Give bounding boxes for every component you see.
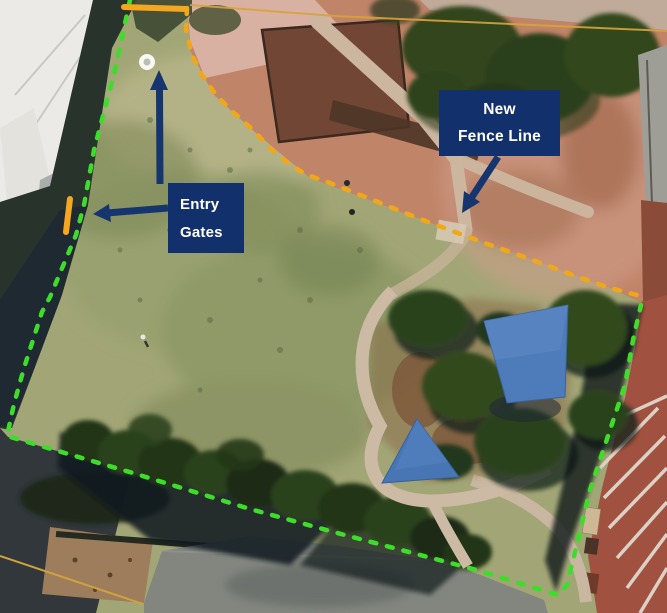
- new-fence-label-line1: New: [483, 102, 515, 118]
- entry-gates-label-line2: Gates: [180, 225, 244, 240]
- entry-gate-left: [66, 199, 70, 232]
- aerial-site-plan: 3: [0, 0, 667, 613]
- entry-gate-top: [124, 7, 186, 9]
- entry-gates-label-line1: Entry: [180, 197, 244, 212]
- gate-marker-circle: [139, 54, 155, 70]
- new-fence-label-line2: Fence Line: [458, 129, 541, 145]
- aerial-basemap: 3: [0, 0, 667, 613]
- entry-gates-label: Entry Gates: [168, 183, 244, 253]
- new-fence-line-label: New Fence Line: [439, 90, 560, 156]
